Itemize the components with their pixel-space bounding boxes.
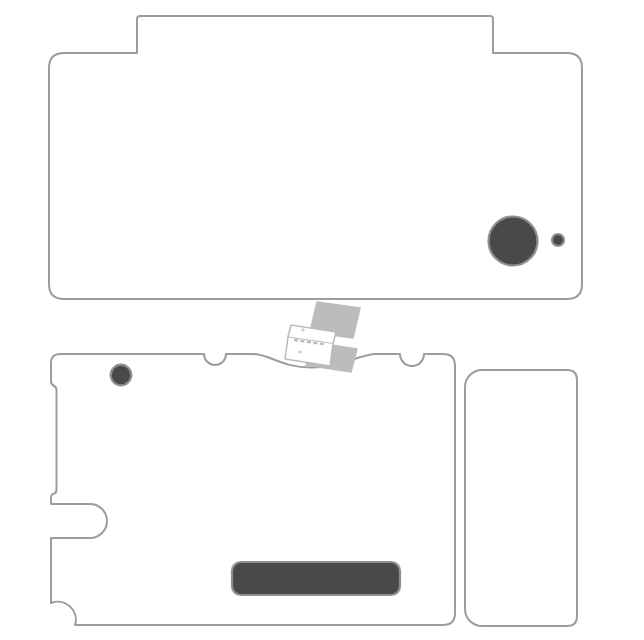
device-watermark-illustration <box>285 302 360 372</box>
bottom-shell-skin-piece <box>51 354 455 625</box>
microphone-cutout <box>552 234 564 246</box>
camera-lens-cutout <box>489 217 538 266</box>
watermark-body-box <box>285 325 336 366</box>
side-strip-skin-piece <box>465 370 577 626</box>
skin-template-canvas <box>0 0 644 640</box>
inner-camera-cutout <box>111 365 132 386</box>
side-strip-skin-outline <box>465 370 577 626</box>
template-graphic <box>0 0 644 640</box>
top-shell-skin-piece <box>49 16 582 299</box>
label-window-cutout <box>232 562 400 595</box>
